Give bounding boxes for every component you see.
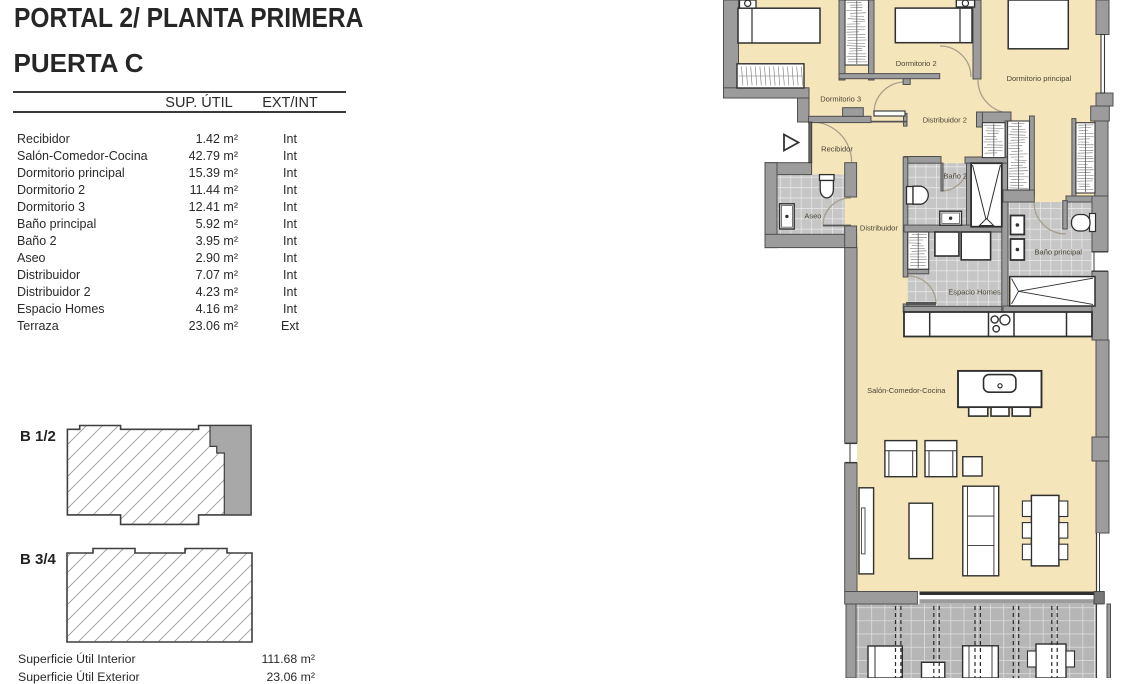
- svg-text:Recibidor: Recibidor: [821, 144, 853, 153]
- svg-text:Baño principal: Baño principal: [1035, 248, 1083, 257]
- svg-text:Dormitorio principal: Dormitorio principal: [1007, 74, 1072, 83]
- svg-text:Salón-Comedor-Cocina: Salón-Comedor-Cocina: [867, 386, 946, 395]
- svg-text:Espacio Homes: Espacio Homes: [948, 287, 1001, 296]
- svg-text:Dormitorio 3: Dormitorio 3: [820, 94, 861, 103]
- svg-text:Baño 2: Baño 2: [943, 172, 967, 181]
- svg-text:Dormitorio 2: Dormitorio 2: [896, 59, 937, 68]
- svg-text:Distribuidor: Distribuidor: [860, 224, 898, 233]
- svg-text:Distribuidor 2: Distribuidor 2: [923, 116, 967, 125]
- svg-text:Aseo: Aseo: [804, 211, 821, 220]
